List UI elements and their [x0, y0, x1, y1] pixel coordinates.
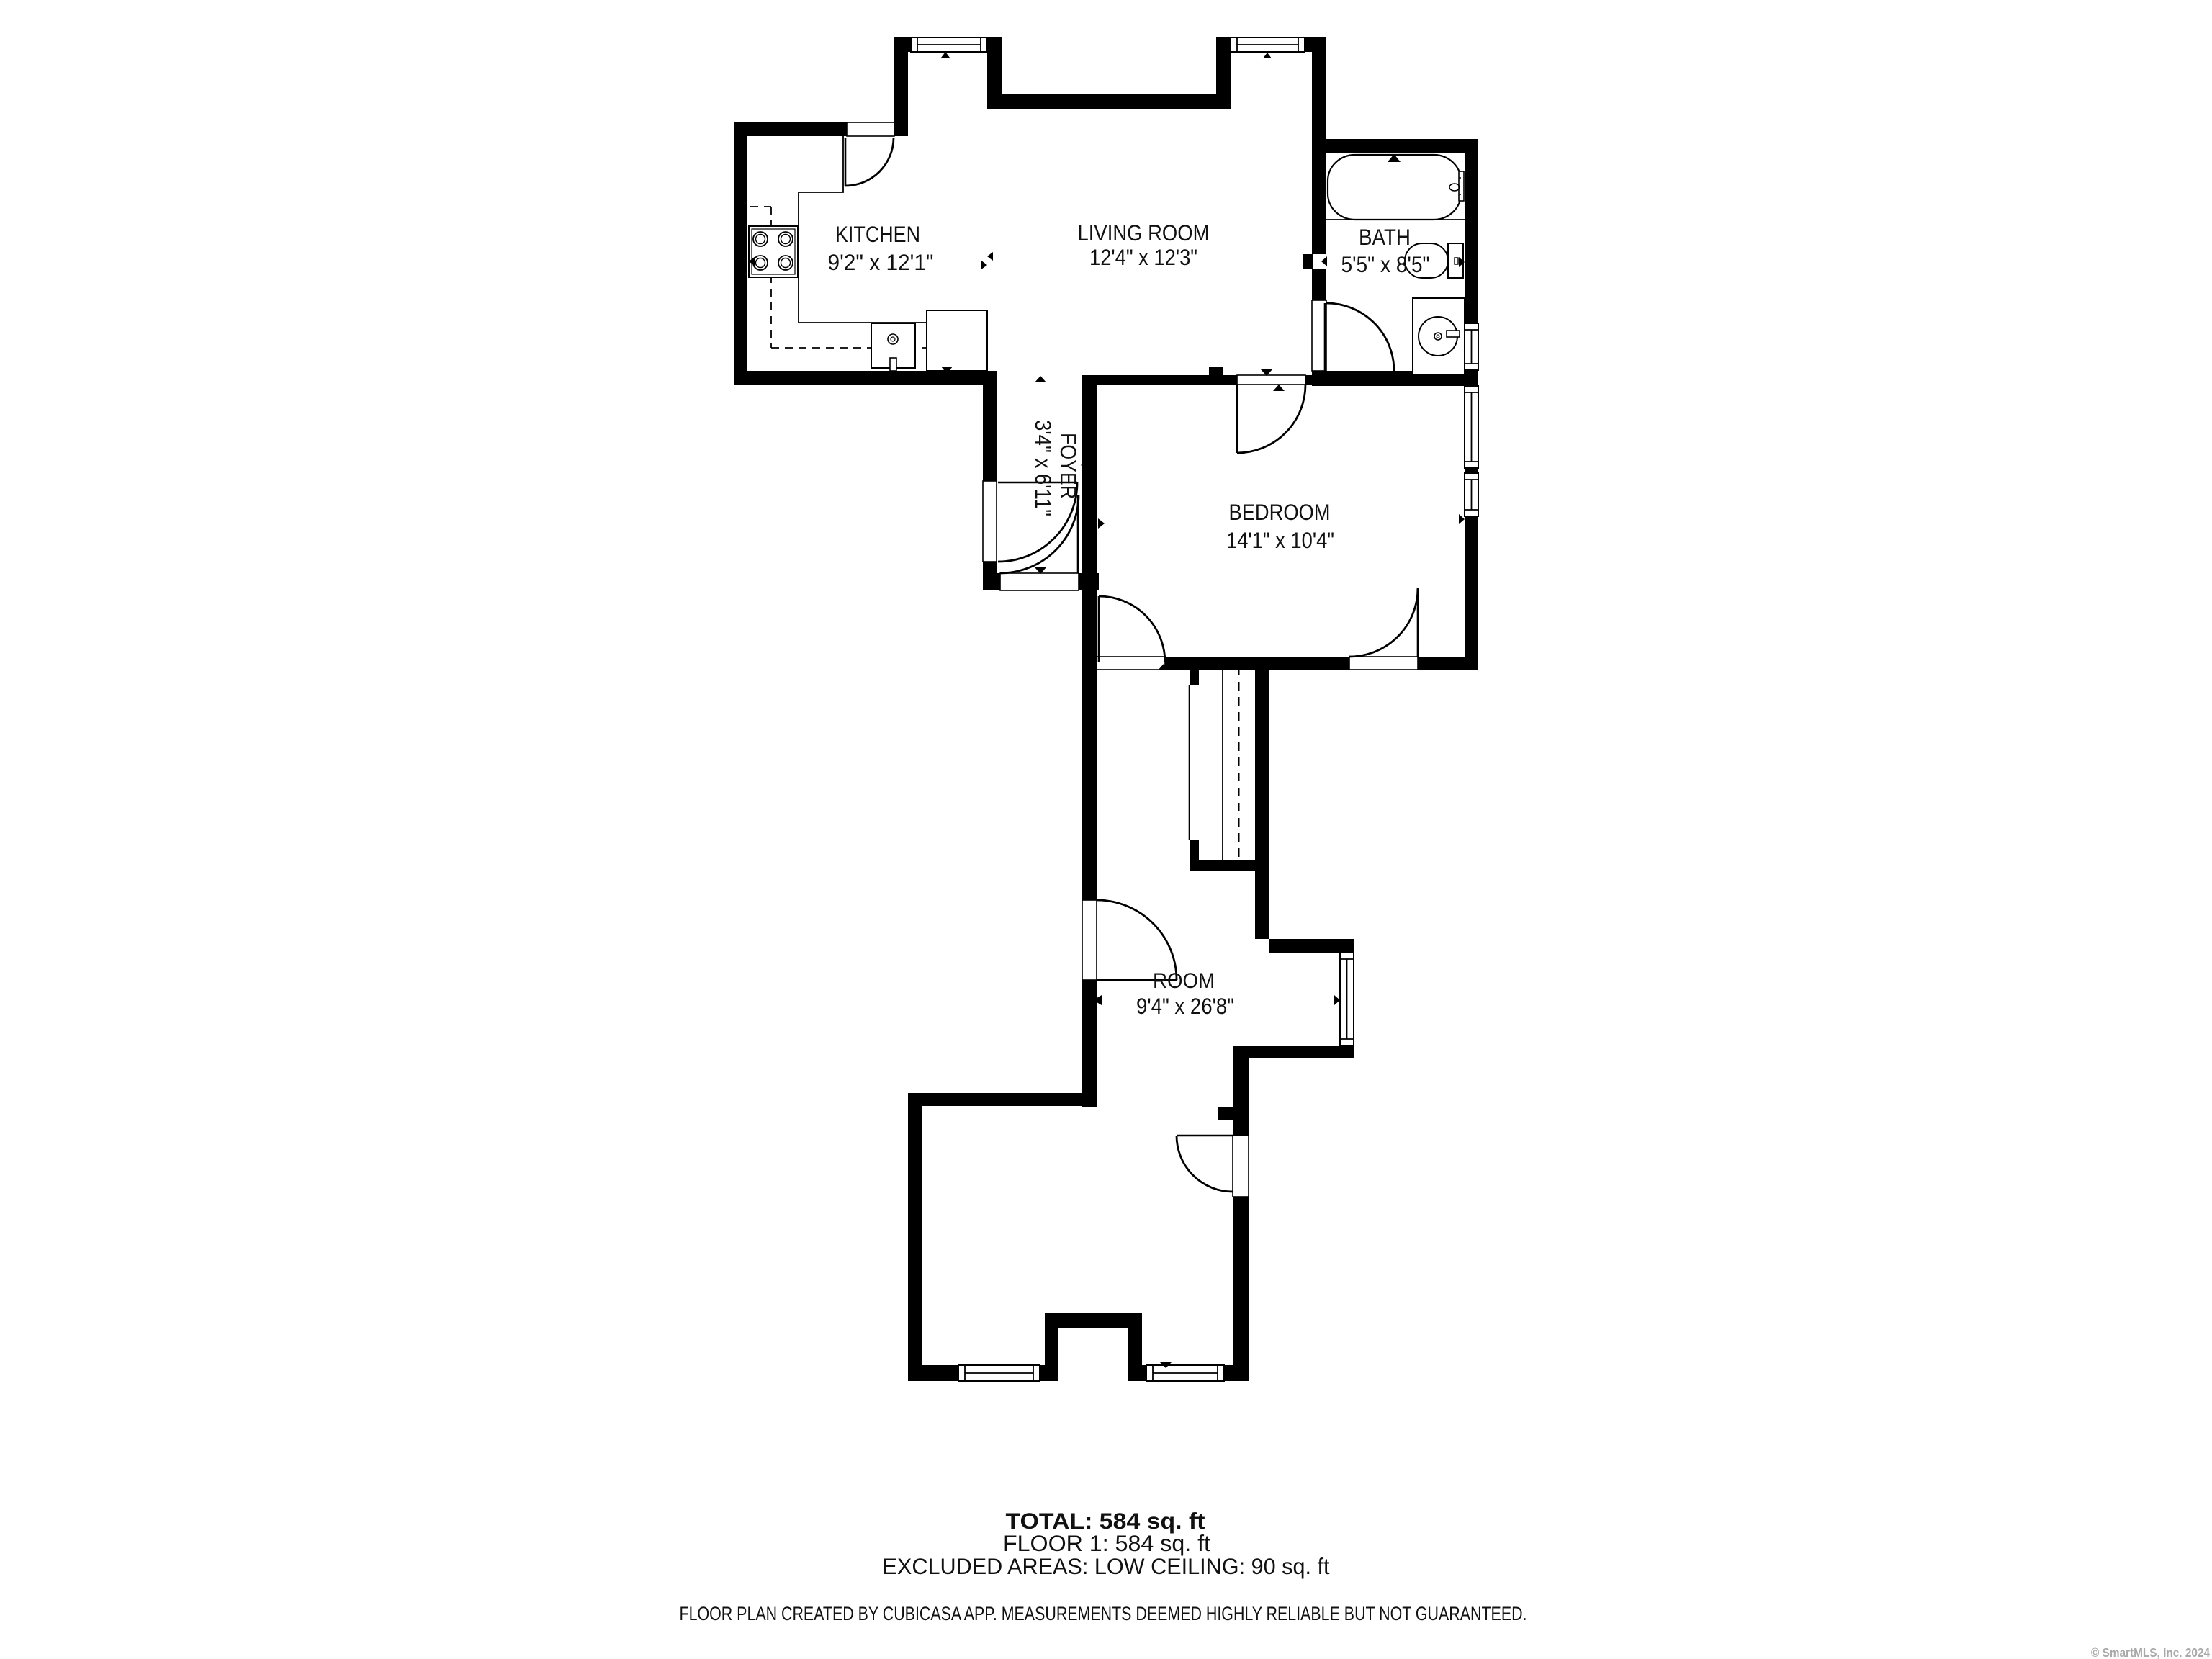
svg-text:FOYER: FOYER [1056, 433, 1082, 499]
svg-text:FLOOR 1: 584 sq. ft: FLOOR 1: 584 sq. ft [1003, 1530, 1210, 1556]
svg-text:BATH: BATH [1359, 224, 1411, 250]
svg-text:5'5" x 8'5": 5'5" x 8'5" [1341, 251, 1430, 277]
svg-text:LIVING ROOM: LIVING ROOM [1078, 220, 1210, 246]
svg-text:ROOM: ROOM [1153, 969, 1215, 993]
svg-text:12'4" x 12'3": 12'4" x 12'3" [1089, 244, 1197, 270]
svg-text:9'4" x 26'8": 9'4" x 26'8" [1136, 993, 1234, 1019]
svg-text:14'1" x 10'4": 14'1" x 10'4" [1226, 527, 1334, 553]
svg-text:KITCHEN: KITCHEN [835, 221, 920, 247]
svg-text:EXCLUDED AREAS: LOW CEILING: 9: EXCLUDED AREAS: LOW CEILING: 90 sq. ft [883, 1553, 1330, 1579]
svg-text:BEDROOM: BEDROOM [1229, 499, 1331, 525]
svg-text:3'4" x 6'11": 3'4" x 6'11" [1030, 420, 1056, 516]
svg-text:© SmartMLS, Inc. 2024: © SmartMLS, Inc. 2024 [2091, 1645, 2210, 1659]
svg-text:FLOOR PLAN CREATED BY CUBICASA: FLOOR PLAN CREATED BY CUBICASA APP. MEAS… [680, 1603, 1527, 1624]
svg-text:9'2" x 12'1": 9'2" x 12'1" [828, 249, 934, 275]
